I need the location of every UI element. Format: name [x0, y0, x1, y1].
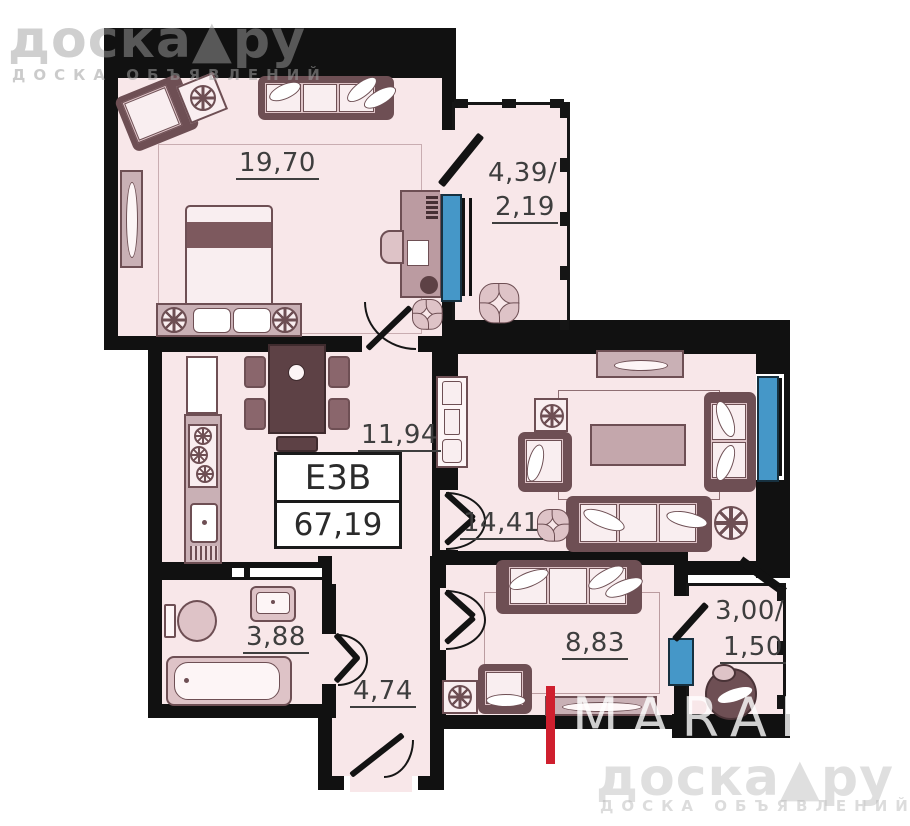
unit-total-area: 67,19 [277, 503, 399, 546]
toilet-tank [164, 604, 176, 638]
desk-printer [426, 196, 438, 220]
unit-info-box: Е3В 67,19 [274, 452, 402, 549]
bed-blanket-band [187, 222, 271, 248]
loveseat-living [704, 392, 756, 492]
wall-band-top-of-living [448, 320, 790, 354]
desk-round-object [420, 276, 438, 294]
balcony-top-glazing-right [560, 104, 569, 330]
wardrobe-mirror-lens [126, 182, 138, 258]
clothes-jacket-icon [442, 439, 462, 463]
watermark-bottom-tagline: ДОСКА ОБЪЯВЛЕНИЙ [600, 797, 910, 815]
round-chair-back [712, 664, 736, 682]
window-bedroom-second [668, 638, 694, 686]
window-living [757, 376, 779, 482]
balcony-top-glazing-top [454, 99, 568, 108]
passage-kitchen-hallway [332, 548, 430, 584]
dining-bench [276, 436, 318, 452]
bathtub-drain [184, 678, 189, 683]
dining-chair-4 [328, 398, 350, 430]
bathroom-wall-insert-bar [250, 568, 322, 577]
dining-table [268, 344, 326, 434]
unit-code: Е3В [277, 455, 399, 503]
maral-logo-bar [546, 686, 555, 764]
bedside-lamp-icon-left [161, 307, 187, 333]
doorway-entrance [350, 774, 412, 792]
bedside-lamp-icon-right [272, 307, 298, 333]
bed-pillow-right [233, 308, 271, 333]
dining-chair-3 [328, 356, 350, 388]
area-label-bathroom: 3,88 [243, 624, 309, 654]
area-label-living: 14,41 [460, 510, 543, 540]
burner-icon-1 [194, 427, 212, 445]
desk-monitor [407, 240, 429, 266]
ceiling-fan-icon-bedroom [190, 85, 216, 111]
fridge [186, 356, 218, 414]
clothes-shirt-icon [442, 381, 462, 405]
ceiling-fan-icon-living [540, 404, 564, 428]
watermark-top-brand: доска▲ру [8, 10, 306, 70]
area-label-balcony-top-reduced: 2,19 [492, 194, 558, 224]
area-label-balcony-bottom-reduced: 1,50 [720, 634, 786, 664]
coffee-table [590, 424, 686, 466]
bathroom-sink-drain [271, 600, 275, 604]
armchair-bedroom-second-pillow [486, 694, 526, 707]
window-frame-line-2 [469, 198, 472, 296]
area-label-balcony-top-total: 4,39/ [485, 160, 560, 188]
area-label-bedroom-main: 19,70 [236, 150, 319, 180]
bed-pillow-left [193, 308, 231, 333]
kitchen-drainboard [190, 546, 218, 560]
window-frame-line-1 [462, 198, 465, 296]
bathtub-basin [174, 662, 280, 700]
toilet-bowl [177, 600, 217, 642]
maral-logo-text: MARAL [572, 686, 823, 749]
burner-icon-2 [190, 446, 208, 464]
tv-stand-lens [614, 360, 668, 371]
bathroom-wall-insert-square [232, 568, 244, 577]
watermark-top-tagline: ДОСКА ОБЪЯВЛЕНИЙ [12, 66, 328, 84]
area-label-kitchen: 11,94 [358, 422, 441, 452]
floor-plan-canvas: 19,70 4,39/ 2,19 11,94 14,41 3,88 4,74 8… [0, 0, 910, 826]
dining-chair-1 [244, 356, 266, 388]
window-frame-line-3 [779, 378, 782, 476]
area-label-balcony-bottom-total: 3,00/ [712, 598, 787, 626]
burner-icon-3 [196, 465, 214, 483]
area-label-bedroom-second: 8,83 [562, 630, 628, 660]
plant-icon-balcony-top [478, 282, 520, 324]
pouf-icon-living [714, 506, 748, 540]
desk-chair [380, 230, 404, 264]
kitchen-sink-drain [202, 520, 207, 525]
window-bedroom-main [441, 194, 462, 302]
entrance-jamb-right [412, 776, 418, 790]
clothes-pants-icon [444, 409, 460, 435]
area-label-hallway: 4,74 [350, 678, 416, 708]
entrance-jamb-left [344, 776, 350, 790]
armchair-living [518, 432, 572, 492]
dining-table-plate [288, 364, 305, 381]
plant-icon-bedroom-second [448, 685, 472, 709]
dining-chair-2 [244, 398, 266, 430]
